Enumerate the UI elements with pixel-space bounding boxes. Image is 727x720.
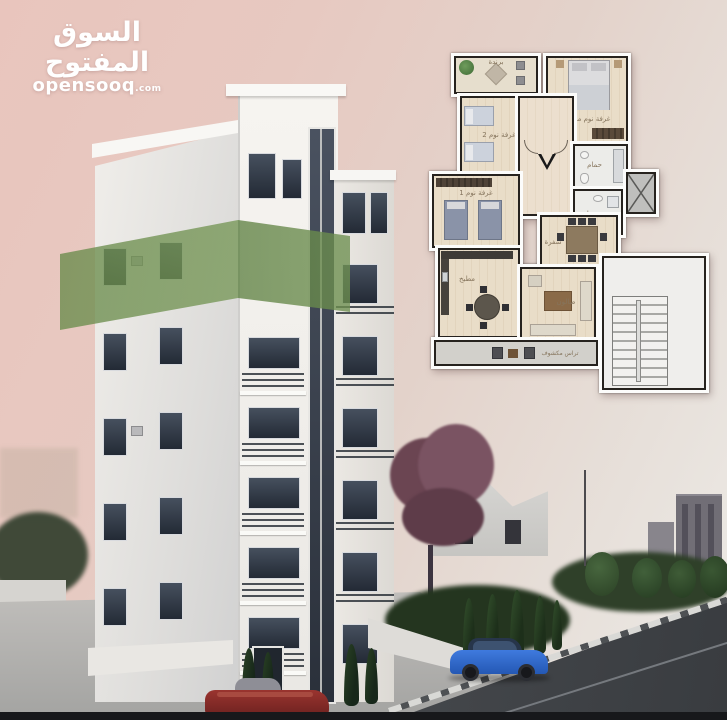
car-wheel bbox=[518, 664, 535, 681]
room-bathroom-1: حمام bbox=[573, 144, 628, 189]
kitchen-counter bbox=[441, 259, 449, 315]
balcony-railing bbox=[242, 513, 304, 515]
hallway bbox=[518, 96, 574, 216]
opensooq-logo-arabic: السوق المفتوح bbox=[16, 18, 178, 77]
chair bbox=[516, 61, 525, 70]
right-wing-cornice bbox=[330, 170, 396, 180]
pillow bbox=[466, 109, 473, 124]
window bbox=[342, 408, 378, 448]
kitchen-counter bbox=[441, 251, 513, 259]
balcony-railing bbox=[242, 589, 304, 591]
street-tree bbox=[585, 552, 619, 596]
window bbox=[159, 412, 183, 450]
window bbox=[342, 336, 378, 376]
chair bbox=[557, 233, 564, 241]
sink bbox=[593, 195, 603, 202]
bed bbox=[568, 60, 610, 110]
plant-icon bbox=[459, 60, 474, 75]
background-house-window bbox=[505, 520, 521, 544]
purple-tree-canopy bbox=[402, 488, 484, 546]
toilet bbox=[580, 173, 589, 184]
elevator bbox=[626, 172, 656, 214]
street-tree bbox=[668, 560, 696, 598]
chair bbox=[578, 218, 586, 225]
window bbox=[342, 552, 378, 592]
balcony-railing bbox=[336, 378, 394, 380]
car-hood-highlight bbox=[217, 692, 313, 697]
dining-table bbox=[566, 226, 598, 254]
balcony-railing bbox=[336, 528, 394, 530]
chair bbox=[466, 304, 473, 311]
balcony-slab bbox=[240, 531, 306, 535]
window bbox=[282, 159, 302, 199]
entry-door-mark bbox=[538, 154, 556, 170]
window bbox=[342, 192, 366, 234]
nightstand bbox=[614, 60, 622, 68]
bottom-edge-strip bbox=[0, 712, 727, 720]
glass-mullion bbox=[320, 129, 322, 702]
balcony-railing bbox=[242, 455, 304, 457]
street-tree bbox=[700, 556, 727, 598]
kitchen-sink bbox=[442, 272, 448, 282]
balcony-railing bbox=[336, 522, 394, 524]
room-balcony: برندة bbox=[454, 56, 538, 94]
street-tree bbox=[632, 558, 662, 598]
distant-left-structure bbox=[0, 448, 78, 518]
opensooq-logo-tld: .com bbox=[135, 84, 161, 94]
balcony-railing bbox=[242, 373, 304, 375]
opensooq-logo-latin: opensooq.com bbox=[16, 77, 178, 95]
elevator-x-icon bbox=[628, 174, 654, 212]
balcony-railing bbox=[336, 312, 394, 314]
bed bbox=[478, 200, 502, 240]
balcony-door bbox=[248, 617, 300, 649]
room-label: مطبخ bbox=[428, 276, 506, 283]
balcony-railing bbox=[242, 595, 304, 597]
room-label: غرفة نوم 1 bbox=[434, 190, 518, 197]
balcony-railing bbox=[336, 384, 394, 386]
balcony-railing bbox=[242, 583, 304, 585]
building-side-face bbox=[95, 130, 238, 702]
bed bbox=[444, 200, 468, 240]
chair bbox=[578, 255, 586, 262]
window bbox=[248, 153, 276, 199]
balcony-floor bbox=[240, 333, 306, 401]
window bbox=[103, 503, 127, 541]
balcony-slab bbox=[240, 601, 306, 605]
chair bbox=[480, 286, 487, 293]
chair bbox=[480, 322, 487, 329]
chair bbox=[516, 76, 525, 85]
pillow bbox=[591, 63, 606, 71]
tower-cornice bbox=[226, 84, 346, 96]
blue-car bbox=[450, 638, 548, 682]
chair bbox=[502, 304, 509, 311]
room-living: صالون bbox=[520, 267, 596, 340]
balcony-railing bbox=[242, 385, 304, 387]
balcony-floor bbox=[240, 543, 306, 611]
window bbox=[159, 582, 183, 620]
wardrobe bbox=[592, 128, 624, 139]
balcony-railing bbox=[336, 456, 394, 458]
door-arc bbox=[524, 140, 538, 154]
pillow bbox=[572, 63, 587, 71]
balcony-railing bbox=[242, 525, 304, 527]
balcony-slab bbox=[240, 391, 306, 395]
balcony-railing bbox=[336, 600, 394, 602]
terrace-table bbox=[508, 349, 518, 358]
glass-stairwell-strip bbox=[308, 127, 336, 704]
window bbox=[103, 588, 127, 626]
chair bbox=[588, 255, 596, 262]
rug bbox=[544, 291, 572, 311]
balcony-railing bbox=[336, 594, 394, 596]
lamp-pole bbox=[584, 470, 586, 566]
balcony-railing bbox=[336, 450, 394, 452]
window bbox=[103, 418, 127, 456]
window bbox=[159, 327, 183, 365]
room-bedroom-1: غرفة نوم 1 bbox=[432, 174, 520, 248]
bathtub bbox=[613, 149, 624, 183]
floor-plan-overlay: برندة غرفة نوم ماستر غرفة نوم 2 bbox=[424, 44, 708, 396]
chair bbox=[568, 255, 576, 262]
sofa bbox=[580, 281, 592, 321]
balcony-door bbox=[248, 407, 300, 439]
balcony-railing bbox=[242, 443, 304, 445]
wardrobe bbox=[436, 178, 492, 187]
kitchen-table bbox=[474, 294, 500, 320]
building-front-face bbox=[238, 95, 338, 702]
ac-unit bbox=[131, 426, 143, 436]
door-arc bbox=[554, 140, 568, 154]
balcony-railing bbox=[242, 519, 304, 521]
real-estate-listing-image: برندة غرفة نوم ماستر غرفة نوم 2 bbox=[0, 0, 727, 720]
rug bbox=[485, 63, 508, 86]
opensooq-watermark: السوق المفتوح opensooq.com bbox=[16, 18, 178, 95]
window bbox=[103, 333, 127, 371]
pillow bbox=[481, 202, 499, 209]
sink bbox=[580, 151, 589, 159]
window bbox=[342, 480, 378, 520]
blanket bbox=[569, 85, 609, 110]
staircase-block bbox=[602, 256, 706, 390]
window bbox=[370, 192, 388, 234]
sofa bbox=[530, 324, 576, 336]
balcony-floor bbox=[240, 403, 306, 471]
pillow bbox=[466, 145, 473, 160]
chair bbox=[524, 347, 535, 359]
balcony-railing bbox=[242, 449, 304, 451]
car-wheel bbox=[462, 664, 479, 681]
nightstand bbox=[556, 60, 564, 68]
chair bbox=[600, 233, 607, 241]
room-terrace: تراس مكشوف bbox=[434, 340, 598, 366]
room-bedroom-2: غرفة نوم 2 bbox=[460, 96, 518, 174]
bed bbox=[464, 142, 494, 162]
room-kitchen: مطبخ bbox=[438, 248, 520, 338]
chair bbox=[568, 218, 576, 225]
balcony-door bbox=[248, 477, 300, 509]
armchair bbox=[528, 275, 542, 287]
stair-stringer bbox=[636, 300, 641, 382]
pillow bbox=[447, 202, 465, 209]
chair bbox=[492, 347, 503, 359]
balcony-floor bbox=[240, 473, 306, 541]
balcony-railing bbox=[242, 379, 304, 381]
balcony-slab bbox=[240, 461, 306, 465]
shower bbox=[607, 196, 619, 208]
chair bbox=[588, 218, 596, 225]
balcony-door bbox=[248, 337, 300, 369]
balcony-door bbox=[248, 547, 300, 579]
window bbox=[159, 497, 183, 535]
bed bbox=[464, 106, 494, 126]
